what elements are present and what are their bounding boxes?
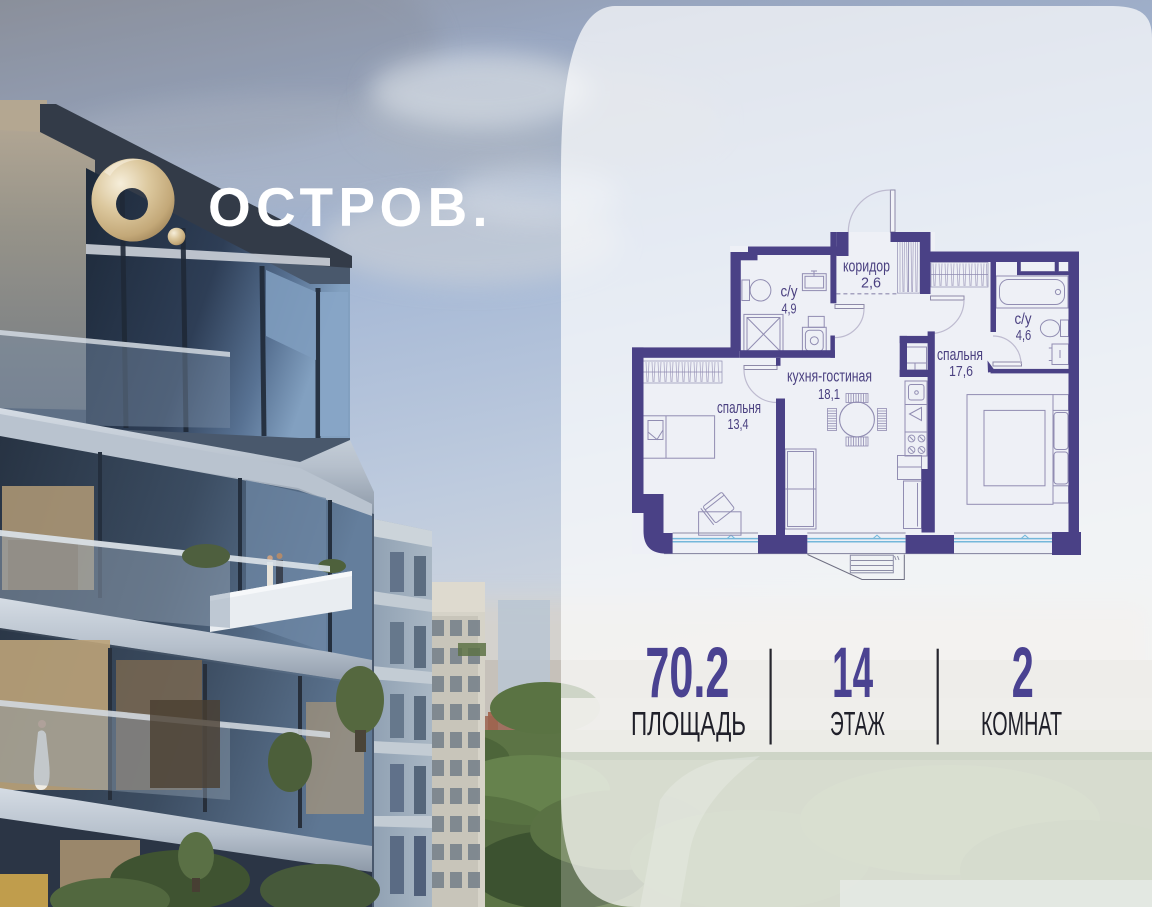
svg-text:спальня: спальня: [937, 345, 983, 364]
svg-text:с/у: с/у: [1015, 311, 1032, 328]
svg-text:кухня-гостиная: кухня-гостиная: [787, 367, 872, 386]
svg-text:13,4: 13,4: [728, 417, 749, 433]
svg-text:18,1: 18,1: [818, 387, 840, 403]
svg-text:ОСТРОВ.: ОСТРОВ.: [208, 176, 493, 238]
svg-text:17,6: 17,6: [949, 364, 973, 380]
svg-text:14: 14: [832, 634, 873, 713]
svg-text:70.2: 70.2: [645, 634, 729, 713]
svg-text:4,6: 4,6: [1016, 328, 1032, 344]
svg-text:ПЛОЩАДЬ: ПЛОЩАДЬ: [631, 705, 746, 742]
svg-text:ЭТАЖ: ЭТАЖ: [830, 705, 885, 742]
svg-text:КОМНАТ: КОМНАТ: [981, 705, 1062, 742]
svg-text:коридор: коридор: [843, 258, 890, 276]
svg-text:спальня: спальня: [717, 398, 761, 417]
svg-text:2,6: 2,6: [861, 276, 881, 292]
svg-text:2: 2: [1012, 634, 1034, 713]
svg-text:с/у: с/у: [781, 284, 798, 301]
svg-text:4,9: 4,9: [782, 302, 797, 318]
